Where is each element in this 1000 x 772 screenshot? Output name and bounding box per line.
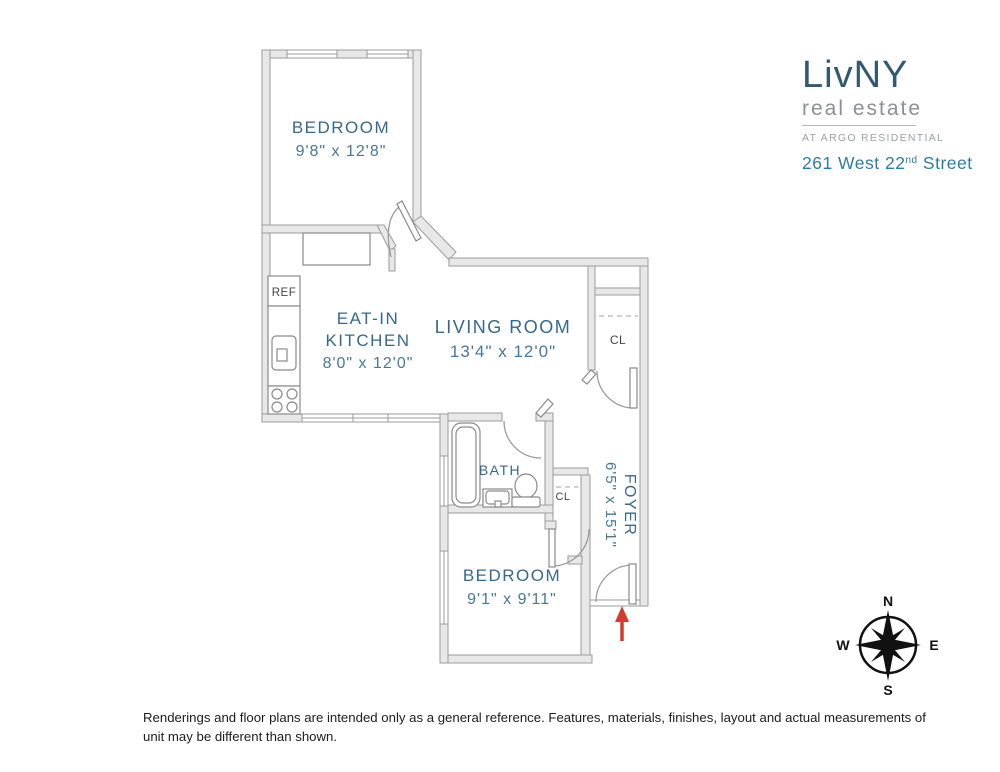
address-prefix: 261 West 22 — [802, 153, 905, 173]
bedroom1-dims: 9'8" x 12'8" — [296, 143, 387, 160]
bath-label: BATH — [479, 462, 521, 478]
wall-bath-top-left — [448, 413, 502, 421]
compass-n: N — [883, 593, 893, 609]
disclaimer-text: Renderings and floor plans are intended … — [143, 709, 933, 746]
kitchen-label-line2: KITCHEN — [325, 331, 410, 350]
stove-burner — [272, 402, 282, 412]
living-room-label: LIVING ROOM — [435, 317, 572, 337]
bath-sink-tap — [495, 501, 501, 507]
toilet-tank — [512, 497, 540, 507]
door-arc-closet1 — [597, 371, 634, 408]
kitchen-sink-basin — [277, 349, 287, 361]
brand-name: LivNY — [802, 56, 962, 94]
door-leaf-bedroom2 — [549, 529, 555, 567]
entry-arrow-head — [615, 606, 629, 622]
closet2-label: CL — [555, 491, 570, 503]
wall-closet1-top — [595, 288, 640, 295]
compass-w: W — [836, 637, 850, 653]
foyer-label: FOYER — [621, 474, 638, 537]
address-suffix: Street — [918, 153, 973, 173]
compass-s: S — [883, 682, 892, 698]
wall-bedroom1-door-angle — [377, 225, 396, 251]
door-arc-entry — [596, 565, 633, 602]
door-arc-bath — [504, 421, 541, 458]
door-stop-closet1 — [582, 370, 596, 384]
stove-burner — [287, 389, 297, 399]
logo-divider — [802, 125, 916, 126]
stove-burner — [287, 402, 297, 412]
compass-e: E — [929, 637, 938, 653]
bedroom1-label: BEDROOM — [292, 118, 390, 137]
wall-right — [640, 266, 648, 606]
wall-foyer-left — [581, 475, 590, 663]
kitchen-counter-top — [303, 233, 370, 265]
wall-top-right — [449, 258, 648, 266]
closet1-label: CL — [610, 333, 626, 347]
door-leaf-closet1 — [630, 368, 637, 408]
wall-bedroom2-bottom — [440, 655, 592, 663]
bedroom2-label: BEDROOM — [463, 566, 561, 585]
compass-rose: N S E W — [836, 593, 938, 698]
kitchen-dims: 8'0" x 12'0" — [323, 355, 414, 372]
wall-livingroom-right — [588, 266, 595, 370]
refrigerator-label: REF — [272, 287, 297, 299]
wall-bedroom2-top-stub — [545, 521, 556, 529]
bathtub-inner — [456, 427, 476, 503]
door-leaf-entry — [629, 564, 636, 604]
wall-left-lower — [440, 414, 448, 663]
brand-subtitle: AT ARGO RESIDENTIAL — [802, 132, 962, 144]
wall-closet2-top — [553, 468, 588, 475]
brand-tagline: real estate — [802, 96, 962, 121]
wall-bedroom1-bottom — [262, 225, 383, 233]
living-room-dims: 13'4" x 12'0" — [450, 342, 556, 361]
wall-bedroom1-right — [413, 50, 421, 222]
kitchen-label-line1: EAT-IN — [337, 309, 400, 328]
entry-arrow — [615, 606, 629, 641]
foyer-dims: 6'5" x 15'1" — [602, 462, 619, 548]
bedroom2-dims: 9'1" x 9'11" — [467, 591, 557, 608]
address-ordinal: nd — [905, 155, 917, 166]
stove-burner — [272, 389, 282, 399]
logo-block: LivNY real estate AT ARGO RESIDENTIAL 26… — [802, 56, 962, 174]
property-address: 261 West 22nd Street — [802, 153, 962, 174]
